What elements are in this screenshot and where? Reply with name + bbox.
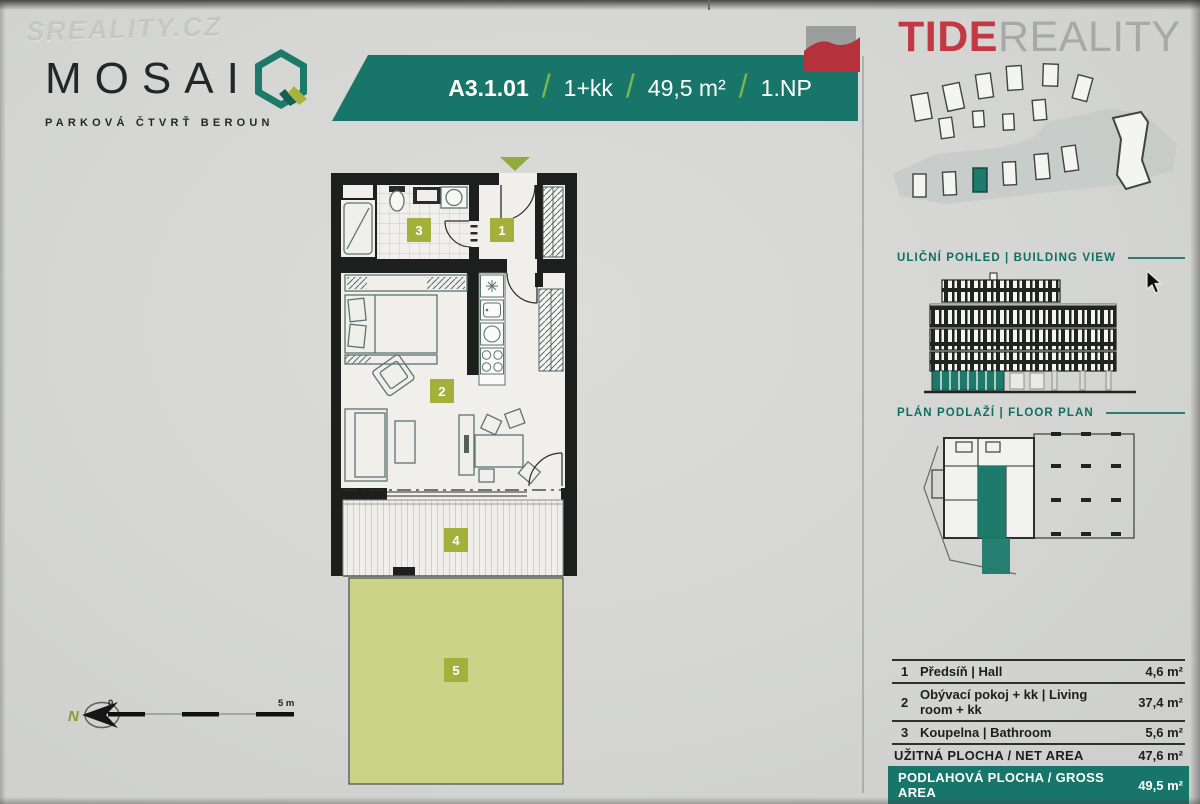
building-view-title: ULIČNÍ POHLED | BUILDING VIEW [897, 252, 1185, 264]
mosaiq-q-icon [252, 48, 310, 110]
table-row: 2 Obývací pokoj + kk | Living room + kk … [892, 682, 1185, 720]
unit-layout: 1+kk [564, 75, 613, 102]
scale-bar: 0 5 m [106, 694, 298, 733]
mosaiq-logo-subtitle: PARKOVÁ ČTVRŤ BEROUN [45, 117, 310, 129]
floor-plan-title: PLÁN PODLAŽÍ | FLOOR PLAN [897, 407, 1185, 419]
table-row-net-area: UŽITNÁ PLOCHA / NET AREA 47,6 m² [892, 743, 1185, 766]
mosaiq-logo-text: MOSAI [45, 54, 252, 104]
mosaiq-logo: MOSAI PARKOVÁ ČTVRŤ BEROUN [45, 48, 310, 129]
content-divider-line [862, 56, 864, 793]
table-row: 3 Koupelna | Bathroom 5,6 m² [892, 720, 1185, 743]
screenshot-root: SREALITY.CZ MOSAI PARKOVÁ ČTVRŤ BEROUN A… [0, 0, 1200, 804]
highlighted-unit [978, 466, 1010, 574]
photo-edge-bottom [0, 797, 1200, 804]
building-floor-plan [916, 428, 1141, 583]
photo-edge-left [0, 0, 6, 804]
separator-slash: / [739, 68, 748, 105]
areas-table: 1 Předsíň | Hall 4,6 m² 2 Obývací pokoj … [892, 659, 1185, 804]
scale-end-label: 5 m [278, 698, 294, 709]
highlighted-building [973, 168, 987, 192]
unit-number: A3.1.01 [448, 75, 529, 102]
entrance-marker-icon [500, 157, 530, 171]
kitchen-counter [479, 273, 505, 385]
unit-floor-plan: 3 1 2 4 5 [329, 153, 579, 798]
label-hall: 1 [498, 223, 505, 238]
highlighted-ground-floor [932, 371, 1004, 390]
scale-start-label: 0 [108, 698, 113, 709]
label-terrace: 4 [452, 533, 460, 548]
tide-logo-icon [804, 26, 860, 76]
tide-brand-primary: TIDE [898, 13, 998, 61]
north-label: N [68, 708, 80, 725]
label-living: 2 [438, 384, 445, 399]
tide-brand-secondary: REALITY [998, 13, 1181, 61]
photo-seam [708, 0, 710, 10]
unit-area: 49,5 m² [648, 75, 726, 102]
photo-edge-right [1190, 0, 1200, 804]
photo-edge-top [0, 0, 1200, 10]
separator-slash: / [542, 68, 551, 105]
separator-slash: / [626, 68, 635, 105]
unit-info-banner: A3.1.01 / 1+kk / 49,5 m² / 1.NP [332, 55, 858, 121]
sreality-watermark: SREALITY.CZ [26, 11, 223, 47]
building-elevation [920, 272, 1140, 401]
site-plan [885, 56, 1185, 241]
label-garden: 5 [452, 663, 459, 678]
label-bathroom: 3 [415, 223, 422, 238]
table-row: 1 Předsíň | Hall 4,6 m² [892, 659, 1185, 682]
mouse-cursor [1146, 270, 1164, 299]
unit-floor: 1.NP [761, 75, 812, 102]
